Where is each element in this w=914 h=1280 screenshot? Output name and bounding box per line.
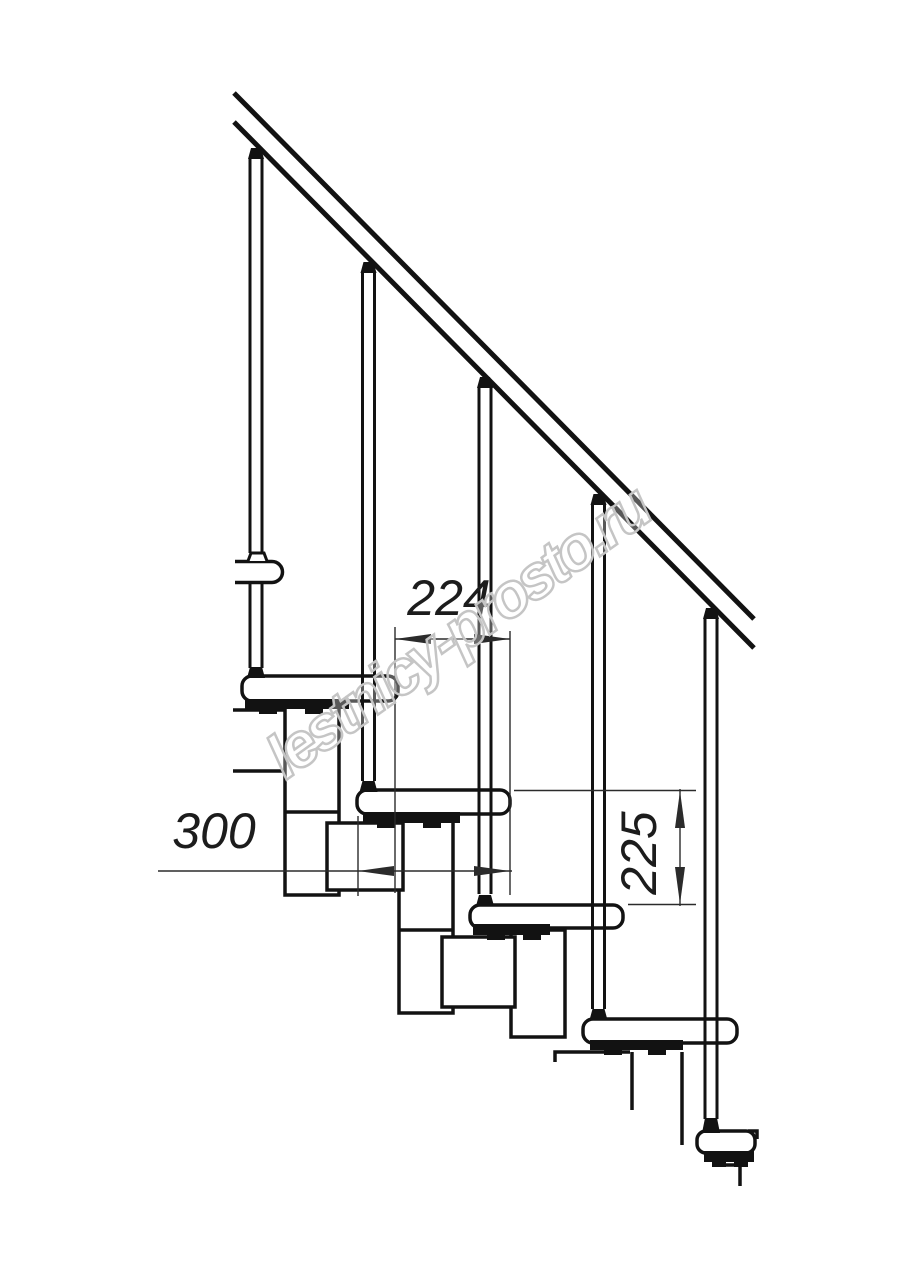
module-box-3 xyxy=(442,937,515,1007)
baluster-1 xyxy=(247,148,265,678)
dimension-label-tread-depth: 300 xyxy=(134,806,294,856)
module-tube-3 xyxy=(511,930,565,1037)
tread-5-cut xyxy=(697,1131,757,1153)
baluster-4 xyxy=(590,494,608,1020)
dimension-label-tread-run: 224 xyxy=(369,573,529,623)
staircase-side-view-drawing xyxy=(0,0,914,1280)
module-box-top-cut xyxy=(233,710,288,771)
baluster-5 xyxy=(702,608,720,1133)
bottom-module-cut xyxy=(714,1165,740,1186)
dimension-label-step-rise: 225 xyxy=(614,773,664,933)
drawing-canvas: 224 300 225 lestnicy-prosto.ru xyxy=(0,0,914,1280)
arrow-left-224 xyxy=(395,634,431,644)
tread-4 xyxy=(583,1019,737,1043)
arrow-up-225 xyxy=(675,791,685,828)
module-tube-4-cut xyxy=(632,1052,682,1145)
handrail xyxy=(234,93,754,648)
tread-2 xyxy=(357,790,510,814)
module-box-2 xyxy=(327,823,403,890)
arrow-down-225 xyxy=(675,867,685,904)
baluster-2 xyxy=(360,262,378,792)
lower-rail-end xyxy=(235,553,283,583)
